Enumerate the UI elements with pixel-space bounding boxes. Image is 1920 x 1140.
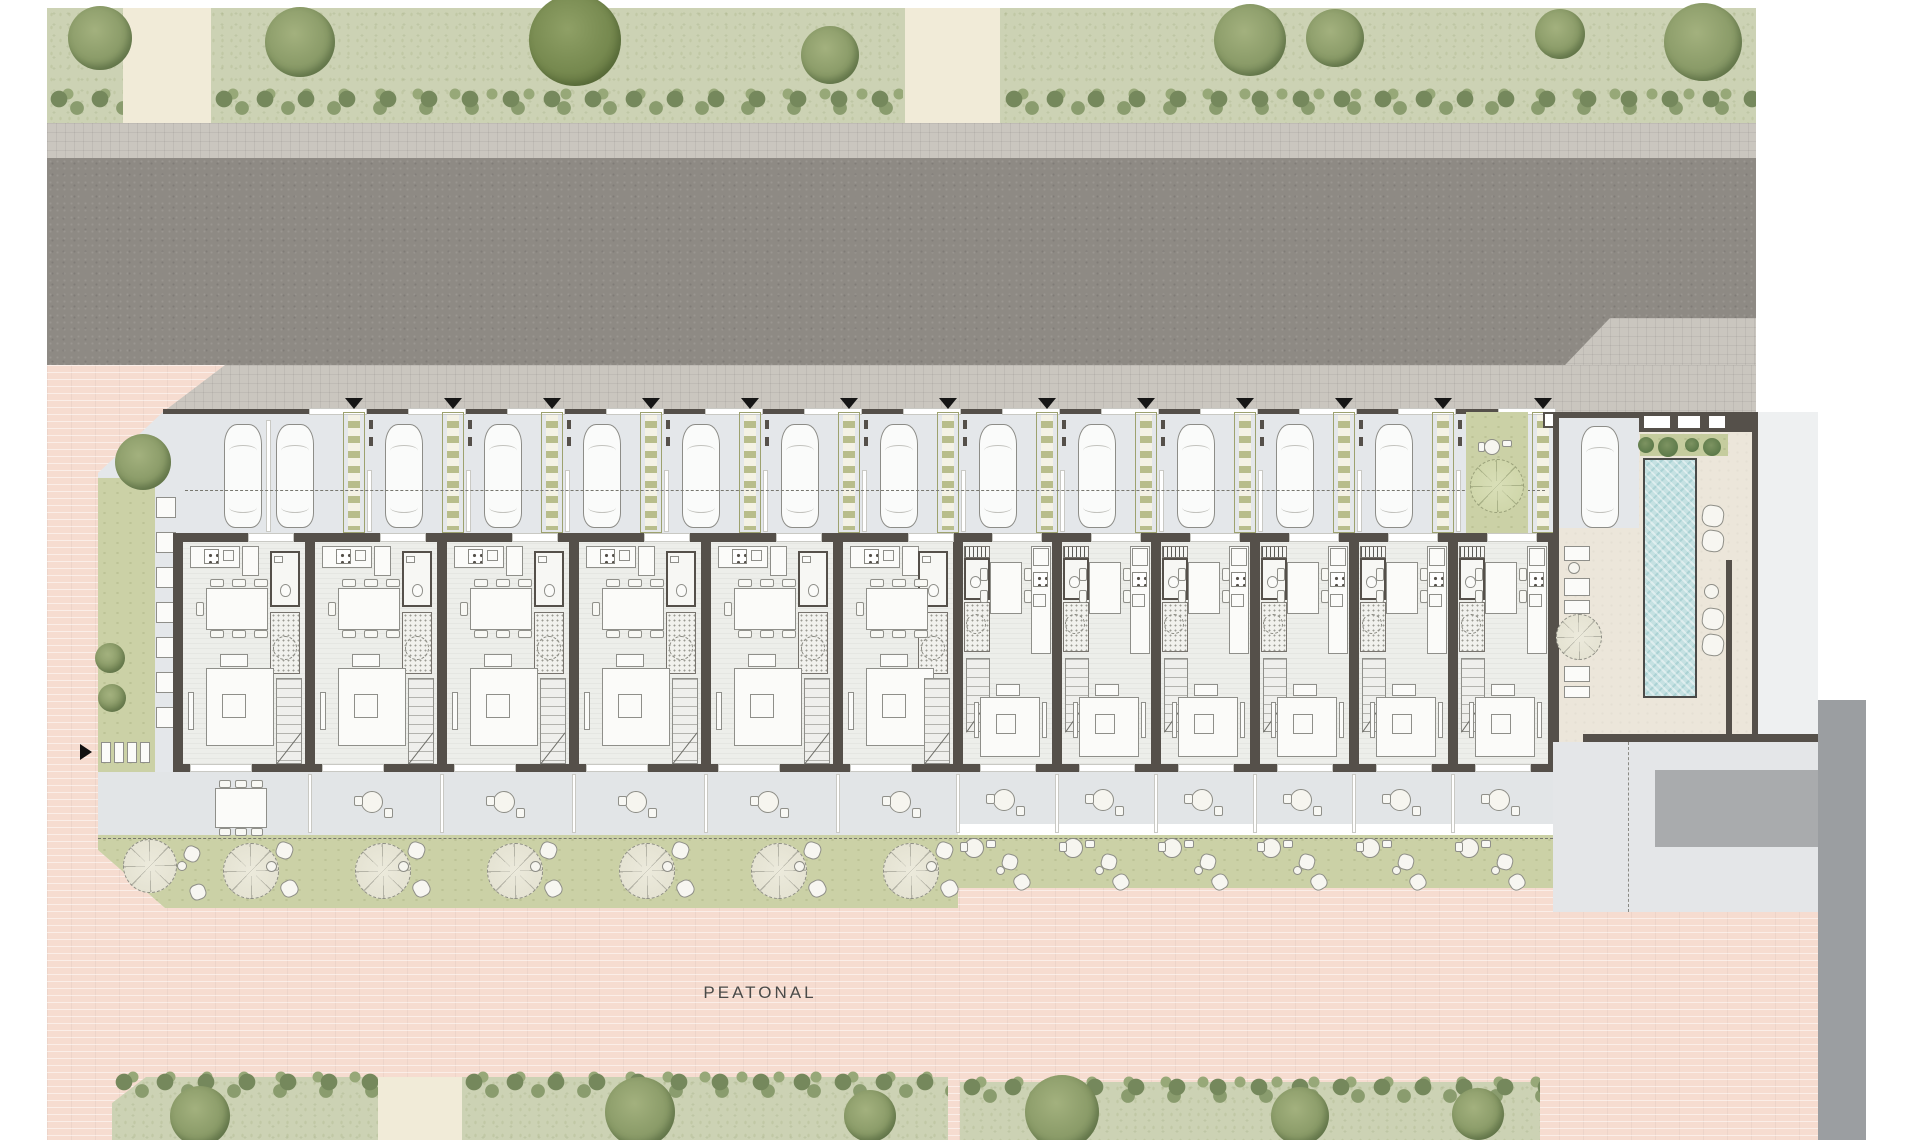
entry-stepping-strip xyxy=(541,412,563,533)
dining-table xyxy=(734,588,796,630)
shower xyxy=(537,636,561,660)
laundry xyxy=(1261,546,1287,558)
chair xyxy=(342,579,356,587)
palm xyxy=(1685,438,1699,452)
pool-inner-wall xyxy=(1726,560,1732,736)
parked-car xyxy=(385,424,423,528)
chair xyxy=(960,842,968,852)
sofa-arm xyxy=(1537,702,1542,738)
chair xyxy=(196,602,204,616)
chair xyxy=(386,630,400,638)
sofa-back xyxy=(880,654,908,667)
tree xyxy=(1452,1088,1504,1140)
chair xyxy=(1085,840,1095,848)
chair xyxy=(1376,590,1384,603)
shower xyxy=(405,636,429,660)
window-gap xyxy=(380,533,426,542)
terrace-table xyxy=(361,791,383,813)
wc-toilet xyxy=(280,584,291,597)
palm xyxy=(1658,437,1678,457)
tree xyxy=(95,643,125,673)
sofa-back xyxy=(1095,684,1119,696)
pool-stool xyxy=(1704,584,1719,599)
stove xyxy=(468,549,483,564)
chair xyxy=(1184,840,1194,848)
tree xyxy=(1535,9,1585,59)
chair xyxy=(1024,568,1032,581)
gate-mark xyxy=(864,420,868,429)
sofa-arm xyxy=(1438,702,1443,738)
stove xyxy=(1330,572,1345,587)
shower xyxy=(669,636,693,660)
garden-parasol xyxy=(123,839,177,893)
stove xyxy=(1429,572,1444,587)
entry-stepping-strip xyxy=(1135,412,1157,533)
sofa-back xyxy=(1392,684,1416,696)
entry-triangle-icon xyxy=(1236,398,1254,409)
tall-cabinet xyxy=(638,546,655,576)
chair xyxy=(1277,568,1285,581)
chair xyxy=(496,579,510,587)
stairs xyxy=(672,678,698,764)
chair xyxy=(1412,806,1421,816)
entry-stepping-strip xyxy=(1333,412,1355,533)
chair xyxy=(384,808,393,818)
chair xyxy=(1016,806,1025,816)
window-gap xyxy=(1079,764,1135,772)
sofa-back xyxy=(1194,684,1218,696)
sofa-arm xyxy=(1172,702,1177,738)
gate-mark xyxy=(963,420,967,429)
chair xyxy=(364,630,378,638)
tv-sideboard xyxy=(188,692,194,730)
sofa-cushion xyxy=(1392,714,1412,734)
chair xyxy=(1519,590,1527,603)
gate-mark xyxy=(1161,437,1165,446)
stepping-stone xyxy=(140,742,150,763)
sink xyxy=(487,550,498,561)
dining-table xyxy=(470,588,532,630)
chair xyxy=(474,630,488,638)
entry-arrow xyxy=(80,744,92,760)
chair xyxy=(606,579,620,587)
entry-triangle-icon xyxy=(345,398,363,409)
sink xyxy=(355,550,366,561)
terrace-divider xyxy=(1055,774,1059,833)
chair xyxy=(1184,794,1193,804)
gate-mark xyxy=(666,437,670,446)
parked-car xyxy=(583,424,621,528)
entry-triangle-icon xyxy=(741,398,759,409)
sink xyxy=(619,550,630,561)
bay-post xyxy=(862,470,867,532)
sofa-arm xyxy=(1339,702,1344,738)
gate-mark xyxy=(1359,420,1363,429)
sofa-cushion xyxy=(1095,714,1115,734)
side-table xyxy=(926,861,937,872)
laundry xyxy=(1459,546,1485,558)
laundry xyxy=(1162,546,1188,558)
chair xyxy=(219,828,231,836)
chair xyxy=(606,630,620,638)
chair xyxy=(750,796,759,806)
deck-stool xyxy=(1568,562,1580,574)
laundry xyxy=(1063,546,1089,558)
gate-mark xyxy=(1062,420,1066,429)
party-wall xyxy=(1448,533,1458,772)
chair xyxy=(254,579,268,587)
sofa-arm xyxy=(1271,702,1276,738)
terrace-divider xyxy=(1451,774,1455,833)
parked-car xyxy=(224,424,262,528)
window-gap xyxy=(1487,533,1537,542)
stairs xyxy=(540,678,566,764)
chair xyxy=(1257,842,1265,852)
bay-post xyxy=(961,470,966,532)
chair xyxy=(760,630,774,638)
chair xyxy=(518,579,532,587)
terrace-table xyxy=(493,791,515,813)
entry-stepping-strip xyxy=(442,412,464,533)
terrace-table xyxy=(889,791,911,813)
wc-sink xyxy=(670,556,679,563)
party-wall xyxy=(569,533,579,772)
tree xyxy=(1664,3,1742,81)
side-strip xyxy=(1758,412,1818,742)
window-gap xyxy=(1475,764,1531,772)
bay-post xyxy=(1159,470,1164,532)
terrace-divider xyxy=(308,774,312,833)
side-table xyxy=(1491,866,1500,875)
wc-sink xyxy=(538,556,547,563)
chair xyxy=(650,579,664,587)
verge-path xyxy=(123,8,211,123)
side-table xyxy=(996,866,1005,875)
chair xyxy=(232,579,246,587)
gate-mark xyxy=(468,420,472,429)
chair xyxy=(1085,794,1094,804)
party-wall xyxy=(953,533,963,772)
verge-path xyxy=(905,8,1000,123)
tall-cabinet xyxy=(506,546,523,576)
entry-stepping-strip xyxy=(343,412,365,533)
stairs xyxy=(276,678,302,764)
window-gap xyxy=(190,764,252,772)
hedge-row xyxy=(212,88,903,122)
deck-lounger xyxy=(1564,686,1590,698)
stove xyxy=(1033,572,1048,587)
entry-stepping-strip xyxy=(937,412,959,533)
entry-triangle-icon xyxy=(1137,398,1155,409)
entry-triangle-icon xyxy=(840,398,858,409)
chair xyxy=(724,602,732,616)
party-wall xyxy=(173,533,183,772)
chair xyxy=(870,630,884,638)
gate-mark xyxy=(1260,420,1264,429)
chair xyxy=(1178,568,1186,581)
shower xyxy=(273,636,297,660)
gate-mark xyxy=(567,420,571,429)
patio-table xyxy=(1484,439,1500,455)
dining-table xyxy=(990,562,1022,614)
bay-post xyxy=(664,470,669,532)
stepping-stone xyxy=(114,742,124,763)
tree xyxy=(801,26,859,84)
chair xyxy=(486,796,495,806)
sink xyxy=(1429,594,1442,607)
chair xyxy=(1283,794,1292,804)
side-table xyxy=(1194,866,1203,875)
tree xyxy=(68,6,132,70)
window-gap xyxy=(644,533,690,542)
deck-table xyxy=(1564,546,1590,561)
side-table xyxy=(530,861,541,872)
parked-car xyxy=(880,424,918,528)
entry-triangle-icon xyxy=(444,398,462,409)
stove xyxy=(1231,572,1246,587)
shower xyxy=(1164,614,1184,634)
window-gap xyxy=(1178,764,1234,772)
chair xyxy=(782,630,796,638)
party-wall xyxy=(1151,533,1161,772)
sofa-back xyxy=(484,654,512,667)
parked-car xyxy=(484,424,522,528)
chair xyxy=(892,630,906,638)
wc-toilet xyxy=(928,584,939,597)
fridge xyxy=(1429,548,1445,566)
skylight xyxy=(1676,414,1702,430)
entry-stepping-strip xyxy=(1234,412,1256,533)
dining-table xyxy=(1188,562,1220,614)
chair xyxy=(1356,842,1364,852)
patio-chair xyxy=(1478,442,1485,452)
party-wall xyxy=(1052,533,1062,772)
chair xyxy=(1313,806,1322,816)
dining-table xyxy=(1386,562,1418,614)
chair xyxy=(986,840,996,848)
wc-sink xyxy=(922,556,931,563)
chair xyxy=(1178,590,1186,603)
bay-post xyxy=(466,470,471,532)
chair xyxy=(1511,806,1520,816)
fridge xyxy=(1330,548,1346,566)
party-wall xyxy=(1349,533,1359,772)
deck-parasol xyxy=(1556,614,1602,660)
entry-stepping-strip xyxy=(1432,412,1454,533)
laundry xyxy=(964,546,990,558)
chair xyxy=(1222,568,1230,581)
shower xyxy=(1362,614,1382,634)
parked-car xyxy=(1078,424,1116,528)
chair xyxy=(870,579,884,587)
shower xyxy=(921,636,945,660)
laundry xyxy=(1360,546,1386,558)
tree xyxy=(115,434,171,490)
chair xyxy=(364,579,378,587)
window-gap xyxy=(1376,764,1432,772)
sink xyxy=(1132,594,1145,607)
chair xyxy=(496,630,510,638)
verge-path xyxy=(378,1077,462,1140)
wc-sink xyxy=(406,556,415,563)
fridge xyxy=(1132,548,1148,566)
sofa-cushion xyxy=(882,694,906,718)
chair xyxy=(1283,840,1293,848)
window-gap xyxy=(322,764,384,772)
gate-mark xyxy=(1458,437,1462,446)
gate-mark xyxy=(1161,420,1165,429)
window-gap xyxy=(248,533,294,542)
chair xyxy=(251,828,263,836)
bay-post xyxy=(367,470,372,532)
tall-cabinet xyxy=(902,546,919,576)
sofa-cushion xyxy=(354,694,378,718)
chair xyxy=(328,602,336,616)
entry-stepping-strip xyxy=(838,412,860,533)
dining-table xyxy=(866,588,928,630)
gate-mark xyxy=(864,437,868,446)
chair xyxy=(232,630,246,638)
sink xyxy=(883,550,894,561)
dining-table xyxy=(1089,562,1121,614)
stove xyxy=(1529,572,1544,587)
terrace-table xyxy=(625,791,647,813)
chair xyxy=(1277,590,1285,603)
chair xyxy=(760,579,774,587)
tree xyxy=(265,7,335,77)
chair xyxy=(1321,568,1329,581)
gate-mark xyxy=(765,437,769,446)
bay-divider xyxy=(266,420,271,532)
window-gap xyxy=(776,533,822,542)
sink xyxy=(223,550,234,561)
parked-car xyxy=(1375,424,1413,528)
terrace-divider xyxy=(836,774,840,833)
gate-mark xyxy=(1359,437,1363,446)
sofa-back xyxy=(352,654,380,667)
chair xyxy=(460,602,468,616)
fridge xyxy=(1231,548,1247,566)
chair xyxy=(235,780,247,788)
hedge-row xyxy=(1002,88,1756,122)
parking-dashed-line xyxy=(185,490,1545,492)
chair xyxy=(986,794,995,804)
tree xyxy=(844,1090,896,1140)
right-gray-band xyxy=(1818,700,1866,1140)
window-gap xyxy=(454,764,516,772)
parked-car xyxy=(781,424,819,528)
dining-table xyxy=(1287,562,1319,614)
chair xyxy=(738,579,752,587)
chair xyxy=(516,808,525,818)
chair xyxy=(1420,590,1428,603)
dining-table xyxy=(1485,562,1517,614)
chair xyxy=(1123,568,1131,581)
gate-mark xyxy=(1458,420,1462,429)
window-gap xyxy=(992,533,1042,542)
fridge xyxy=(1033,548,1049,566)
skylight xyxy=(1642,414,1672,430)
tv-sideboard xyxy=(716,692,722,730)
entry-triangle-icon xyxy=(1534,398,1552,409)
sofa-cushion xyxy=(1194,714,1214,734)
chair xyxy=(892,579,906,587)
dining-table xyxy=(602,588,664,630)
sofa-arm xyxy=(1073,702,1078,738)
tree xyxy=(529,0,621,86)
side-table xyxy=(794,861,805,872)
sink xyxy=(1330,594,1343,607)
sofa-arm xyxy=(1240,702,1245,738)
pool xyxy=(1643,458,1697,698)
parked-car xyxy=(682,424,720,528)
shower xyxy=(1065,614,1085,634)
terrace-table xyxy=(215,788,267,828)
entry-triangle-icon xyxy=(939,398,957,409)
party-wall xyxy=(437,533,447,772)
chair xyxy=(1024,590,1032,603)
skylight xyxy=(1707,414,1727,430)
chair xyxy=(518,630,532,638)
chair xyxy=(354,796,363,806)
fridge xyxy=(1529,548,1545,566)
shower xyxy=(966,614,986,634)
tv-sideboard xyxy=(452,692,458,730)
side-table xyxy=(266,861,277,872)
gate-mark xyxy=(666,420,670,429)
side-table xyxy=(1293,866,1302,875)
stairs xyxy=(804,678,830,764)
terrace-table xyxy=(757,791,779,813)
shower xyxy=(1263,614,1283,634)
chair xyxy=(628,630,642,638)
entry-triangle-icon xyxy=(1038,398,1056,409)
sofa-cushion xyxy=(222,694,246,718)
sink xyxy=(1033,594,1046,607)
sofa-arm xyxy=(1469,702,1474,738)
sofa-arm xyxy=(1042,702,1047,738)
chair xyxy=(780,808,789,818)
window-gap xyxy=(1190,533,1240,542)
chair xyxy=(980,590,988,603)
terrace-table xyxy=(1389,789,1411,811)
sofa-cushion xyxy=(750,694,774,718)
sofa-arm xyxy=(1370,702,1375,738)
plaza-wall xyxy=(1583,734,1818,742)
bay-post xyxy=(1456,470,1461,532)
tall-cabinet xyxy=(770,546,787,576)
terrace-divider xyxy=(1154,774,1158,833)
terrace-divider xyxy=(572,774,576,833)
gate-mark xyxy=(468,437,472,446)
party-wall xyxy=(305,533,315,772)
chair xyxy=(235,828,247,836)
parked-car xyxy=(1177,424,1215,528)
gate-mark xyxy=(369,437,373,446)
sofa-cushion xyxy=(996,714,1016,734)
entry-triangle-icon xyxy=(543,398,561,409)
terrace-table xyxy=(1191,789,1213,811)
terrace-divider xyxy=(440,774,444,833)
terrace-table xyxy=(1290,789,1312,811)
terrace-divider xyxy=(1352,774,1356,833)
sofa-arm xyxy=(974,702,979,738)
chair xyxy=(1123,590,1131,603)
deck-lounger xyxy=(1564,600,1590,614)
stove xyxy=(732,549,747,564)
terrace-table xyxy=(1092,789,1114,811)
tree xyxy=(1025,1075,1099,1140)
